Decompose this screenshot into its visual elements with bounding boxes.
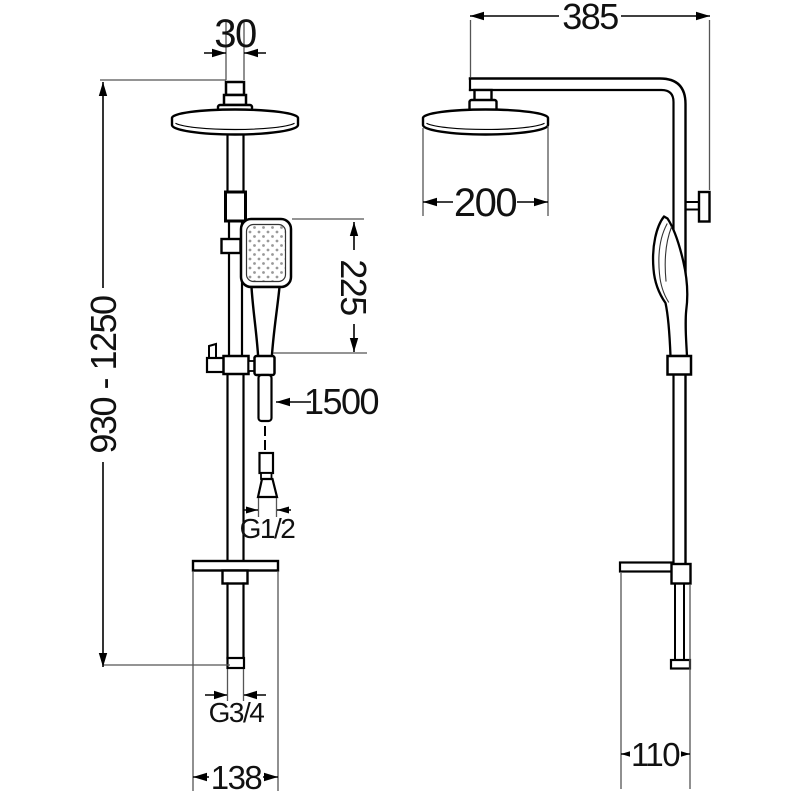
hose-segment <box>259 375 272 421</box>
dimension-label: 200 <box>454 181 516 225</box>
dimension-column-height-930-1250: 930 - 1250 <box>83 80 230 667</box>
arrowhead <box>193 773 207 781</box>
side-slider-clamp <box>668 356 692 375</box>
dimension-head-connector-30: 30 <box>204 12 266 80</box>
dimension-label: 138 <box>211 759 262 796</box>
side-bottom-pipe-cap <box>671 660 690 669</box>
arrowhead <box>350 222 358 236</box>
front-hose-connector <box>258 453 277 497</box>
dimension-label: G3/4 <box>209 697 265 728</box>
side-arm-and-column <box>470 79 686 563</box>
arrowhead <box>423 198 437 206</box>
shower-arm-inner <box>470 90 674 562</box>
drawing-canvas: 30 930 - 1250 225 1500 <box>0 0 800 800</box>
shelf-block <box>223 571 248 584</box>
arrowhead <box>264 773 278 781</box>
front-overhead-shower <box>172 82 298 135</box>
shower-arm-outer <box>470 79 686 563</box>
front-hand-shower <box>241 219 291 362</box>
bottom-pipe-cap <box>228 658 245 668</box>
dimension-base-width-138: 138 <box>193 572 278 796</box>
dimension-label: 30 <box>214 12 256 56</box>
riser-lock-block <box>222 239 241 253</box>
side-view <box>423 79 710 669</box>
holder-lever <box>209 344 216 358</box>
dimension-label: 1500 <box>304 381 379 422</box>
dimension-hose-thread-g12: G1/2 <box>240 498 296 544</box>
arrowhead <box>276 398 290 406</box>
dimension-bottom-thread-g34: G3/4 <box>205 669 266 728</box>
riser-sleeve-joint <box>226 192 246 221</box>
side-shelf-block <box>672 564 691 584</box>
side-shelf <box>620 563 691 669</box>
riser-tube-upper <box>228 128 244 192</box>
dimension-side-depth-110: 110 <box>621 573 690 789</box>
dimension-hose-1500: 1500 <box>276 381 379 422</box>
dimension-label: G1/2 <box>240 513 296 544</box>
side-shelf-plate <box>620 563 673 572</box>
arrowhead <box>99 82 107 96</box>
wall-bracket-plate <box>699 192 710 222</box>
hose-cone-fitting <box>258 479 277 497</box>
hand-shower-profile <box>653 217 687 357</box>
arrowhead <box>696 12 710 20</box>
wall-bracket-stub <box>686 202 700 210</box>
hose-nut <box>260 453 274 473</box>
side-bottom-pipe <box>675 584 684 661</box>
dimension-label: 225 <box>333 259 374 315</box>
front-riser-column <box>222 128 246 561</box>
dimension-head-diameter-200: 200 <box>423 126 548 225</box>
dimension-label: 110 <box>631 736 680 773</box>
bottom-pipe <box>228 584 244 659</box>
dimension-label: 930 - 1250 <box>83 296 124 454</box>
arrowhead <box>470 12 484 20</box>
holder-cup <box>255 356 275 375</box>
side-wall-bracket <box>686 192 710 222</box>
side-head-disc <box>423 110 548 135</box>
shelf-plate <box>193 561 278 571</box>
side-overhead-shower <box>423 90 548 135</box>
holder-clamp <box>224 356 249 374</box>
arrowhead <box>534 198 548 206</box>
arrowhead <box>350 338 358 352</box>
hand-shower-spray-plate <box>247 225 286 282</box>
front-shelf <box>193 561 278 668</box>
head-connector-pipe <box>226 82 244 95</box>
head-disc <box>172 110 298 135</box>
shower-set-technical-drawing: 30 930 - 1250 225 1500 <box>0 0 800 800</box>
head-connector-collar <box>224 95 246 105</box>
dimension-label: 385 <box>562 0 618 37</box>
front-shower-hose <box>259 375 272 453</box>
front-view <box>172 82 298 668</box>
hand-shower-handle <box>252 287 280 362</box>
